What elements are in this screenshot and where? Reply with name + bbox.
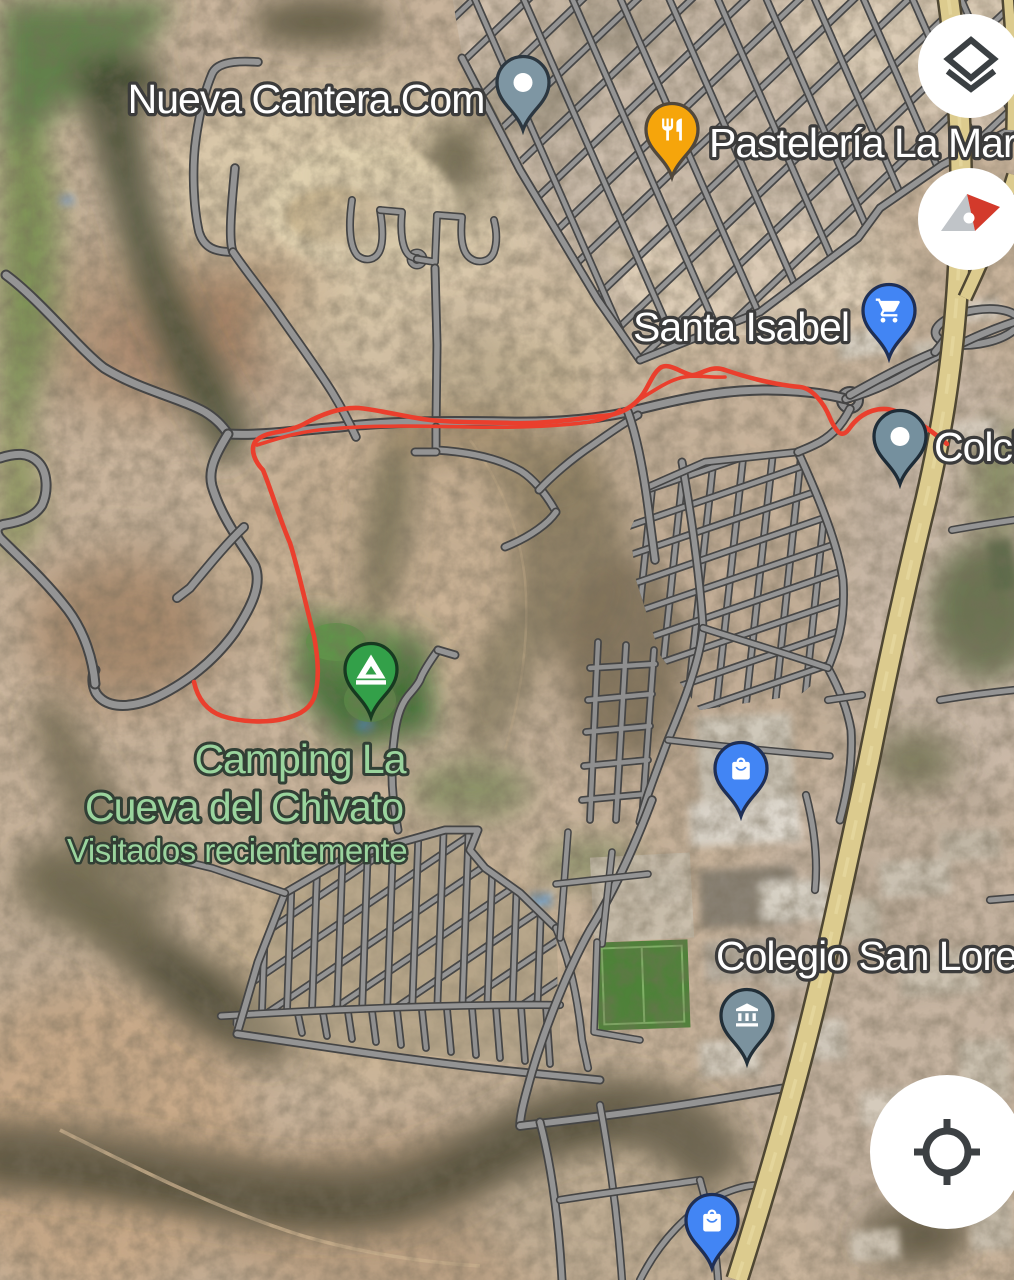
svg-text:Colegio San Lorenzo: Colegio San Lorenzo — [716, 933, 1014, 979]
svg-text:Cueva del Chivato: Cueva del Chivato — [85, 784, 403, 830]
svg-text:Santa Isabel: Santa Isabel — [633, 304, 849, 350]
svg-text:Pastelería La Mar: Pastelería La Mar — [709, 120, 1014, 166]
svg-text:Nueva Cantera.Com: Nueva Cantera.Com — [128, 76, 485, 122]
svg-text:Colchones: Colchones — [934, 424, 1014, 470]
svg-text:Camping La: Camping La — [194, 736, 406, 782]
svg-text:Visitados recientemente: Visitados recientemente — [67, 832, 407, 869]
